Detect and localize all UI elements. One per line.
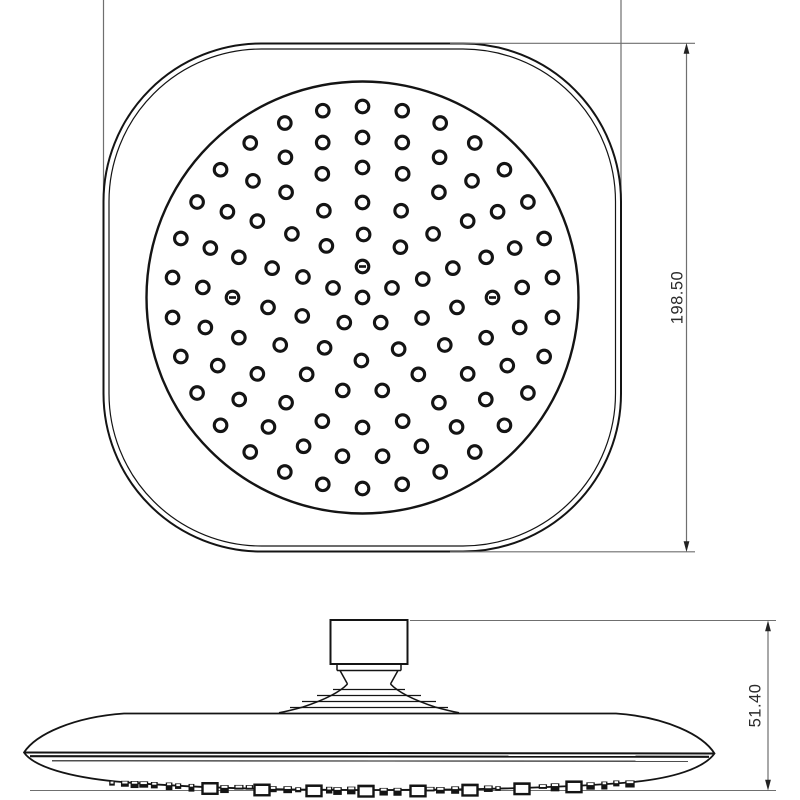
nozzle-hole xyxy=(450,421,463,434)
nozzle-hole xyxy=(433,396,446,409)
small-nozzle-notch xyxy=(247,786,252,788)
nozzle-hole xyxy=(396,415,409,428)
nozzle-hole xyxy=(266,262,279,275)
nozzle-hole xyxy=(466,175,479,188)
nozzle-hole xyxy=(516,281,529,294)
nozzle-hole xyxy=(427,228,440,241)
nozzle-hole xyxy=(233,251,246,264)
nozzle-hole xyxy=(262,421,275,434)
nozzle-hole xyxy=(336,450,349,463)
large-nozzle-lip xyxy=(410,785,427,787)
nozzle-hole xyxy=(498,419,511,432)
nozzle-hole xyxy=(513,321,526,334)
nozzle-hole xyxy=(197,281,210,294)
nozzle-hole xyxy=(434,117,447,130)
nozzle-hole xyxy=(355,354,368,367)
small-nozzle-notch xyxy=(497,787,500,789)
large-nozzle-lip xyxy=(358,785,375,787)
small-nozzle-notch xyxy=(552,784,558,786)
small-nozzle-notch xyxy=(152,783,156,785)
nozzle-hole xyxy=(451,301,464,314)
small-nozzle-notch xyxy=(588,783,594,785)
nozzle-hole xyxy=(166,271,179,284)
small-nozzle-notch xyxy=(627,781,634,783)
nozzle-hole xyxy=(447,262,460,275)
nozzle-hole xyxy=(247,175,260,188)
large-nozzle-bump xyxy=(567,782,582,793)
nozzle-hole xyxy=(279,117,292,130)
arrow-down-icon xyxy=(684,541,690,552)
nozzle-hole xyxy=(300,368,313,381)
large-nozzle-bump xyxy=(411,786,426,797)
nozzle-hole xyxy=(166,311,179,324)
nozzle-hole xyxy=(336,384,349,397)
nozzle-hole xyxy=(233,331,246,344)
nozzle-hole xyxy=(376,384,389,397)
nozzle-hole xyxy=(296,310,309,323)
nozzle-hole xyxy=(199,321,212,334)
arrow-up-icon xyxy=(765,621,771,632)
small-nozzle-notch xyxy=(395,789,401,791)
nozzle-hole xyxy=(394,241,407,254)
nozzle-hole xyxy=(438,339,451,352)
nozzle-hole xyxy=(279,466,292,479)
small-nozzle-notch xyxy=(236,786,243,788)
small-nozzle-notch xyxy=(285,787,291,789)
nozzle-hole xyxy=(546,271,559,284)
small-nozzle-notch xyxy=(111,782,114,784)
drawing-canvas: 198.50 51.40 xyxy=(0,0,800,800)
large-nozzle-bump xyxy=(255,785,270,796)
nozzle-hole xyxy=(318,204,331,217)
nozzle-hole xyxy=(286,228,299,241)
nozzle-hole xyxy=(468,446,481,459)
nozzle-hole xyxy=(316,136,329,149)
nozzle-hole xyxy=(175,232,188,245)
nozzle-hole xyxy=(546,311,559,324)
nozzle-hole xyxy=(327,282,340,295)
rim-line-1 xyxy=(25,753,714,754)
nozzle-hole xyxy=(251,368,264,381)
nozzle-hole xyxy=(280,186,293,199)
small-nozzle-notch xyxy=(427,788,434,790)
nozzle-hole xyxy=(316,104,329,117)
nozzle-hole xyxy=(479,393,492,406)
arrow-down-icon xyxy=(765,780,771,791)
large-nozzle-lip xyxy=(566,780,583,782)
nozzle-hole xyxy=(316,415,329,428)
nozzle-hole xyxy=(316,478,329,491)
nozzle-hole xyxy=(416,273,429,286)
large-nozzle-lip xyxy=(306,784,323,786)
nozzle-hole xyxy=(316,168,329,181)
rim-line-2 xyxy=(30,756,709,757)
nozzle-hole xyxy=(491,205,504,218)
nozzle-hole xyxy=(538,232,551,245)
small-nozzle-notch xyxy=(452,787,457,789)
nozzle-hole xyxy=(211,359,224,372)
nozzle-hole xyxy=(396,168,409,181)
nozzle-hole xyxy=(356,196,369,209)
nozzle-hole xyxy=(244,446,257,459)
nozzle-hole xyxy=(356,131,369,144)
nozzle-hole xyxy=(386,282,399,295)
arrow-up-icon xyxy=(684,43,690,54)
nozzle-hole xyxy=(480,331,493,344)
nozzle-hole xyxy=(522,196,535,209)
large-nozzle-lip xyxy=(462,784,479,786)
nozzle-hole xyxy=(396,104,409,117)
nozzle-hole xyxy=(214,163,227,176)
large-nozzle-lip xyxy=(254,784,271,786)
large-nozzle-bump xyxy=(463,785,478,796)
nozzle-hole xyxy=(461,368,474,381)
nozzle-hole xyxy=(357,228,370,241)
nozzle-hole xyxy=(416,312,429,325)
small-nozzle-notch xyxy=(176,784,180,786)
nozzle-hole xyxy=(356,421,369,434)
nozzle-hole-mark xyxy=(229,296,236,299)
small-nozzle-notch xyxy=(221,786,227,788)
nozzle-hole xyxy=(297,440,310,453)
mount-dome xyxy=(279,684,459,713)
nozzle-hole xyxy=(412,368,425,381)
shower-head-top-geometry xyxy=(104,44,622,552)
nozzle-hole xyxy=(433,151,446,164)
large-nozzle-bump xyxy=(515,784,530,795)
nozzle-hole xyxy=(501,359,514,372)
nozzle-hole xyxy=(356,161,369,174)
small-nozzle-notch xyxy=(122,782,127,784)
small-nozzle-notch xyxy=(381,789,387,791)
small-nozzle-notch xyxy=(603,782,607,784)
small-nozzle-notch xyxy=(167,783,171,785)
small-nozzle-notch xyxy=(437,788,443,790)
inlet-connector xyxy=(331,620,408,664)
small-nozzle-notch xyxy=(327,788,331,790)
nozzle-hole xyxy=(279,151,292,164)
nozzle-hole xyxy=(468,137,481,150)
nozzle-hole xyxy=(522,387,535,400)
small-nozzle-notch xyxy=(296,788,300,790)
technical-drawing: 198.50 51.40 xyxy=(0,0,800,800)
nozzle-hole xyxy=(338,316,351,329)
nozzle-hole xyxy=(395,204,408,217)
nozzle-hole xyxy=(396,478,409,491)
nozzle-hole xyxy=(461,215,474,228)
small-nozzle-notch xyxy=(485,786,491,788)
nozzle-hole xyxy=(508,242,521,255)
large-nozzle-bump xyxy=(307,786,322,797)
side-view: 51.40 xyxy=(24,620,776,796)
dimension-side-view-height: 51.40 xyxy=(746,621,771,791)
small-nozzle-notch xyxy=(540,785,546,787)
small-nozzle-notch xyxy=(141,782,147,784)
nozzle-hole xyxy=(204,242,217,255)
dimension-label-plate-height: 198.50 xyxy=(668,271,686,324)
nozzle-hole-mark xyxy=(359,265,366,268)
nozzle-hole xyxy=(320,240,333,253)
large-nozzle-lip xyxy=(514,782,531,784)
dome-ridge-lines xyxy=(290,690,448,708)
large-nozzle-bump xyxy=(203,783,218,794)
dome-outline xyxy=(279,684,459,713)
nozzle-hole xyxy=(318,342,331,355)
nozzle-hole xyxy=(191,387,204,400)
nozzle-hole xyxy=(274,339,287,352)
nozzle-hole xyxy=(434,466,447,479)
nozzle-hole xyxy=(356,291,369,304)
nozzle-hole xyxy=(498,163,511,176)
nozzle-hole-mark xyxy=(489,296,496,299)
nozzle-hole xyxy=(175,350,188,363)
small-nozzle-notch xyxy=(271,787,276,789)
nozzle-hole xyxy=(356,482,369,495)
large-nozzle-lip xyxy=(202,782,219,784)
nozzle-hole xyxy=(191,196,204,209)
nozzle-hole xyxy=(480,251,493,264)
nozzle-hole xyxy=(538,350,551,363)
nozzle-hole xyxy=(233,393,246,406)
small-nozzle-notch xyxy=(348,787,354,789)
nozzle-hole xyxy=(221,205,234,218)
nozzle-hole xyxy=(280,396,293,409)
small-nozzle-notch xyxy=(614,781,618,783)
large-nozzle-bump xyxy=(359,786,374,797)
small-nozzle-notch xyxy=(190,785,193,787)
small-nozzle-notch xyxy=(335,788,341,790)
nozzle-hole xyxy=(262,301,275,314)
nozzle-hole xyxy=(356,100,369,113)
nozzle-hole xyxy=(415,440,428,453)
neck-collar xyxy=(331,664,408,684)
nozzle-hole xyxy=(244,137,257,150)
nozzle-hole xyxy=(376,450,389,463)
nozzle-hole xyxy=(297,271,310,284)
nozzle-hole xyxy=(433,186,446,199)
nozzle-hole xyxy=(214,419,227,432)
nozzle-hole xyxy=(392,343,405,356)
top-view: 198.50 xyxy=(104,0,696,552)
nozzle-hole xyxy=(374,316,387,329)
nozzle-hole xyxy=(251,215,264,228)
small-nozzle-notch xyxy=(132,782,137,784)
nozzle-hole xyxy=(396,136,409,149)
dimension-label-head-height: 51.40 xyxy=(746,684,764,728)
